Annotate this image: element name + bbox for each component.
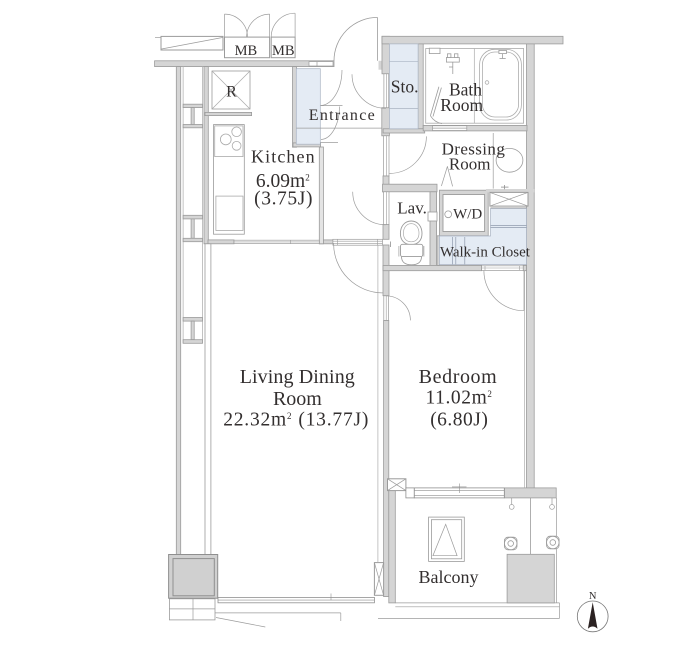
svg-text:(6.80J): (6.80J) [430, 409, 488, 430]
svg-text:R: R [226, 84, 237, 101]
svg-text:Living Dining: Living Dining [240, 366, 355, 388]
svg-text:Room: Room [449, 154, 491, 173]
svg-text:Balcony: Balcony [419, 567, 479, 587]
svg-text:N: N [589, 591, 597, 602]
svg-text:11.02m2: 11.02m2 [425, 388, 492, 409]
svg-text:Kitchen: Kitchen [251, 147, 316, 167]
svg-text:Room: Room [273, 388, 322, 410]
svg-text:Entrance: Entrance [309, 107, 376, 124]
svg-text:W/D: W/D [453, 207, 482, 223]
svg-text:Sto.: Sto. [391, 77, 419, 97]
svg-text:Room: Room [440, 95, 483, 115]
svg-text:Bedroom: Bedroom [419, 366, 498, 388]
svg-text:(3.75J): (3.75J) [254, 189, 313, 210]
svg-text:MB: MB [272, 43, 295, 59]
svg-text:MB: MB [235, 43, 258, 59]
svg-text:Lav.: Lav. [397, 199, 427, 218]
svg-text:Walk-in Closet: Walk-in Closet [440, 244, 531, 260]
